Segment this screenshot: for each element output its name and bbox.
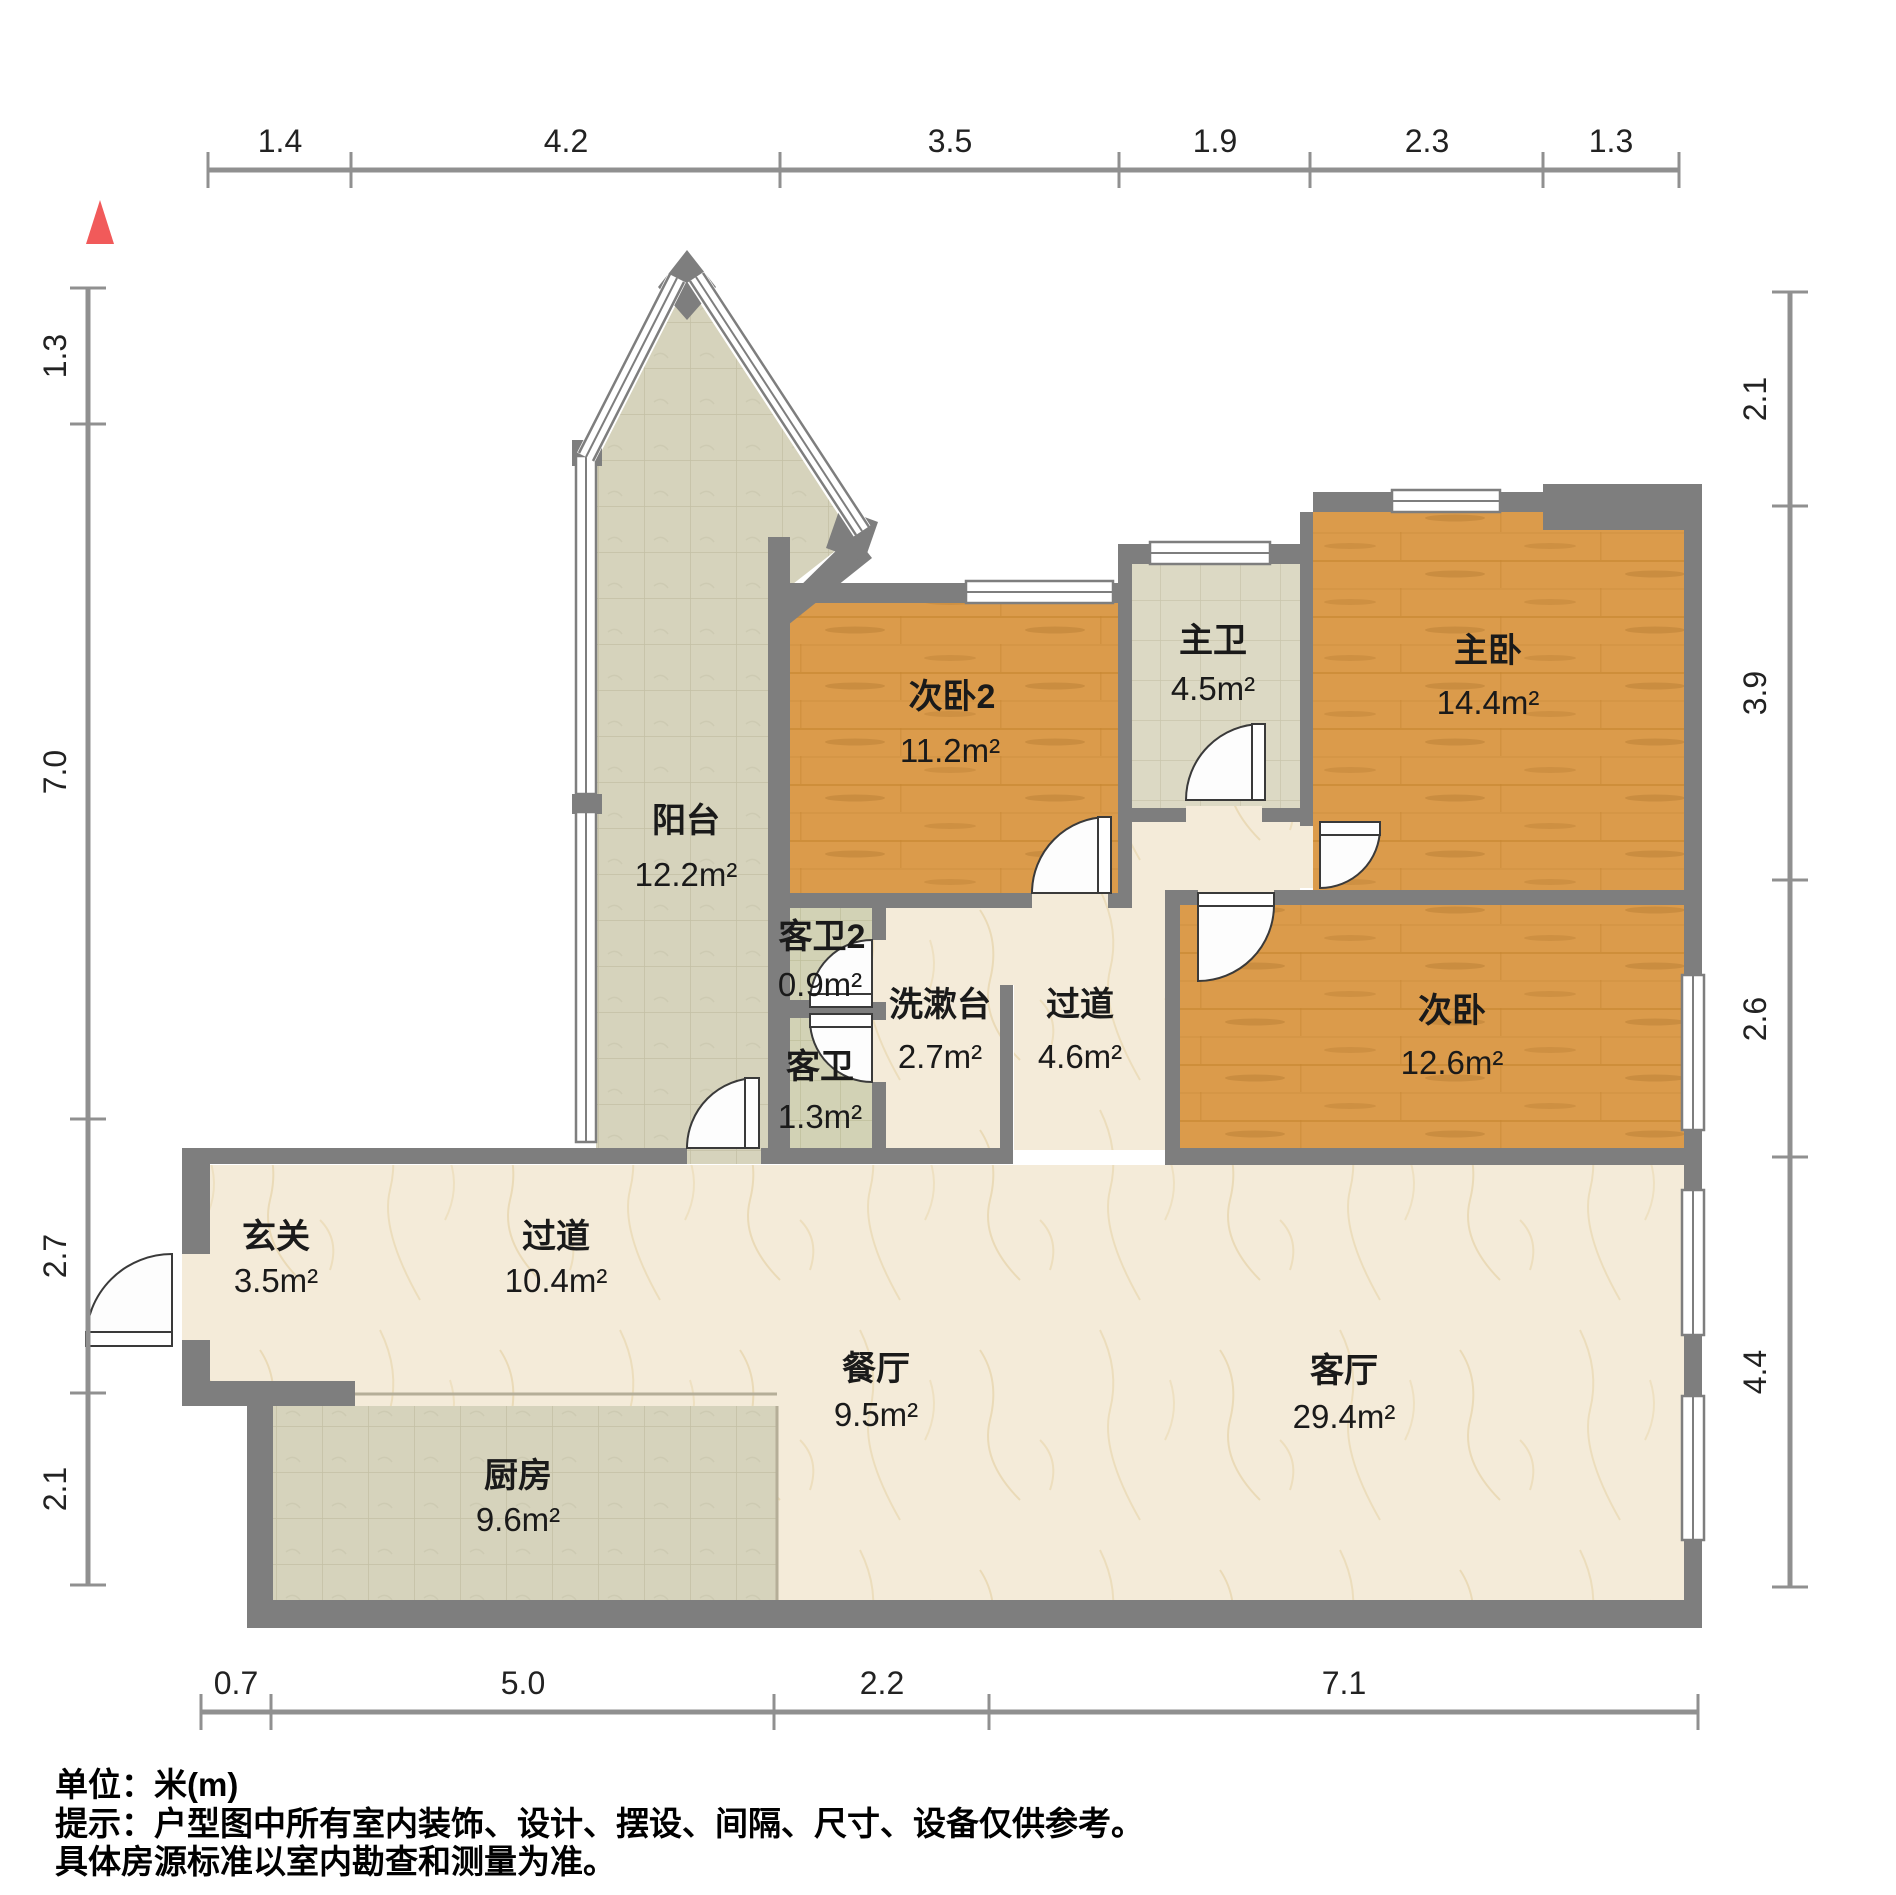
floor-plan-canvas: 阳台 12.2m² 次卧2 11.2m² 主卫 4.5m² 主卧 14.4m² … xyxy=(0,0,1896,1895)
svg-text:0.7: 0.7 xyxy=(214,1665,258,1701)
ruler-left-labels: 1.3 7.0 2.7 2.1 xyxy=(37,334,73,1511)
ruler-top-labels: 1.4 4.2 3.5 1.9 2.3 1.3 xyxy=(258,123,1633,159)
svg-text:7.0: 7.0 xyxy=(37,750,73,794)
footer-hint-1: 提示：户型图中所有室内装饰、设计、摆设、间隔、尺寸、设备仅供参考。 xyxy=(55,1805,1144,1842)
window-living-right-upper xyxy=(1682,1190,1704,1335)
svg-text:2.1: 2.1 xyxy=(1737,377,1773,421)
wall-segment xyxy=(1165,1148,1684,1165)
room-label-guest-bath2: 客卫2 xyxy=(779,917,866,956)
room-label-bedroom2: 次卧2 xyxy=(909,678,996,716)
room-area-balcony: 12.2m² xyxy=(635,856,738,893)
room-label-second-bedroom: 次卧 xyxy=(1418,992,1486,1030)
svg-text:2.7: 2.7 xyxy=(37,1234,73,1278)
wall-segment xyxy=(768,1148,1013,1164)
room-area-living: 29.4m² xyxy=(1293,1398,1396,1435)
room-label-master-bedroom: 主卧 xyxy=(1454,632,1522,670)
wall-segment xyxy=(872,1002,886,1020)
wall-segment xyxy=(1274,890,1684,905)
svg-text:4.4: 4.4 xyxy=(1737,1350,1773,1394)
room-label-washstand: 洗漱台 xyxy=(889,986,991,1024)
room-area-second-bedroom: 12.6m² xyxy=(1401,1044,1504,1081)
svg-text:1.3: 1.3 xyxy=(1589,123,1633,159)
door-entry xyxy=(86,1254,172,1346)
footer-hint-2: 具体房源标准以室内勘查和测量为准。 xyxy=(55,1843,616,1880)
room-area-washstand: 2.7m² xyxy=(898,1038,982,1075)
room-area-corridor-upper: 4.6m² xyxy=(1038,1038,1122,1075)
wall-segment xyxy=(872,905,886,940)
room-label-corridor-upper: 过道 xyxy=(1046,986,1114,1024)
wall-segment xyxy=(247,1406,273,1628)
doorway-patch xyxy=(182,1254,210,1340)
wall-segment xyxy=(1543,484,1690,530)
room-area-foyer: 3.5m² xyxy=(234,1262,318,1299)
footer-unit: 单位：米(m) xyxy=(55,1766,238,1803)
doorway-patch xyxy=(1186,806,1262,824)
svg-text:2.3: 2.3 xyxy=(1405,123,1449,159)
ruler-bottom-labels: 0.7 5.0 2.2 7.1 xyxy=(214,1665,1366,1701)
svg-text:3.9: 3.9 xyxy=(1737,671,1773,715)
room-area-guest-bath: 1.3m² xyxy=(778,1098,862,1135)
wall-segment xyxy=(182,1381,355,1406)
room-label-living: 客厅 xyxy=(1310,1351,1378,1390)
ruler-bottom xyxy=(201,1694,1698,1730)
doorway-patch xyxy=(872,1018,886,1084)
svg-text:1.9: 1.9 xyxy=(1193,123,1237,159)
wall-segment xyxy=(1118,564,1132,908)
svg-text:1.3: 1.3 xyxy=(37,334,73,378)
floors xyxy=(182,283,1686,1600)
wall-segment xyxy=(1300,564,1313,826)
floor-corridor-link xyxy=(1000,905,1014,985)
room-area-bedroom2: 11.2m² xyxy=(900,732,1000,769)
wall-segment xyxy=(182,1148,578,1164)
wall-segment xyxy=(574,1148,687,1164)
floor-washstand xyxy=(886,905,1000,1148)
svg-text:4.2: 4.2 xyxy=(544,123,588,159)
svg-text:2.1: 2.1 xyxy=(37,1467,73,1511)
wall-segment xyxy=(1000,985,1013,1164)
room-area-corridor-lower: 10.4m² xyxy=(505,1262,608,1299)
floor-corridor-top xyxy=(1132,822,1300,890)
doorway-patch xyxy=(872,938,886,1004)
floor-plan-page: 阳台 12.2m² 次卧2 11.2m² 主卫 4.5m² 主卧 14.4m² … xyxy=(0,0,1896,1895)
doorway-patch xyxy=(687,1148,761,1164)
window-balcony-left-lower xyxy=(576,812,596,1142)
svg-text:1.4: 1.4 xyxy=(258,123,302,159)
room-label-corridor-lower: 过道 xyxy=(522,1218,590,1256)
doorway-patch xyxy=(1300,826,1313,888)
room-area-guest-bath2: 0.9m² xyxy=(778,966,862,1003)
wall-segment xyxy=(1165,905,1180,1150)
wall-segment xyxy=(1118,808,1186,822)
wall-segment xyxy=(247,1600,1702,1628)
window-master-bath-top xyxy=(1150,542,1270,564)
room-area-dining: 9.5m² xyxy=(834,1396,918,1433)
room-label-guest-bath: 客卫 xyxy=(786,1047,854,1086)
svg-text:2.2: 2.2 xyxy=(860,1665,904,1701)
ruler-right-labels: 2.1 3.9 2.6 4.4 xyxy=(1737,377,1773,1394)
room-label-balcony: 阳台 xyxy=(652,802,720,840)
ruler-right xyxy=(1772,292,1808,1587)
room-area-master-bedroom: 14.4m² xyxy=(1437,684,1540,721)
svg-text:5.0: 5.0 xyxy=(501,1665,545,1701)
room-label-kitchen: 厨房 xyxy=(484,1457,552,1495)
wall-segment xyxy=(1300,512,1313,564)
wall-segment xyxy=(872,1082,886,1150)
window-balcony-left-upper xyxy=(576,456,596,794)
room-area-master-bath: 4.5m² xyxy=(1171,670,1255,707)
wall-segment xyxy=(182,1148,210,1254)
window-master-bedroom-top xyxy=(1392,490,1500,512)
window-bedroom2-top xyxy=(966,581,1113,603)
room-area-kitchen: 9.6m² xyxy=(476,1501,560,1538)
room-label-foyer: 玄关 xyxy=(242,1218,310,1256)
window-living-right-lower xyxy=(1682,1396,1704,1540)
wall-segment xyxy=(1108,893,1132,908)
north-arrow-icon xyxy=(86,200,114,244)
room-label-dining: 餐厅 xyxy=(842,1350,910,1388)
wall-segment xyxy=(1262,808,1313,822)
svg-text:3.5: 3.5 xyxy=(928,123,972,159)
wall-segment xyxy=(770,893,1032,908)
window-second-bedroom-right xyxy=(1682,975,1704,1130)
ruler-left xyxy=(70,288,106,1585)
svg-text:2.6: 2.6 xyxy=(1737,997,1773,1041)
svg-text:7.1: 7.1 xyxy=(1322,1665,1366,1701)
wall-segment xyxy=(761,1148,790,1164)
wall-segment xyxy=(1165,890,1198,905)
room-label-master-bath: 主卫 xyxy=(1179,622,1247,660)
footer-notes: 单位：米(m) 提示：户型图中所有室内装饰、设计、摆设、间隔、尺寸、设备仅供参考… xyxy=(55,1766,1144,1880)
